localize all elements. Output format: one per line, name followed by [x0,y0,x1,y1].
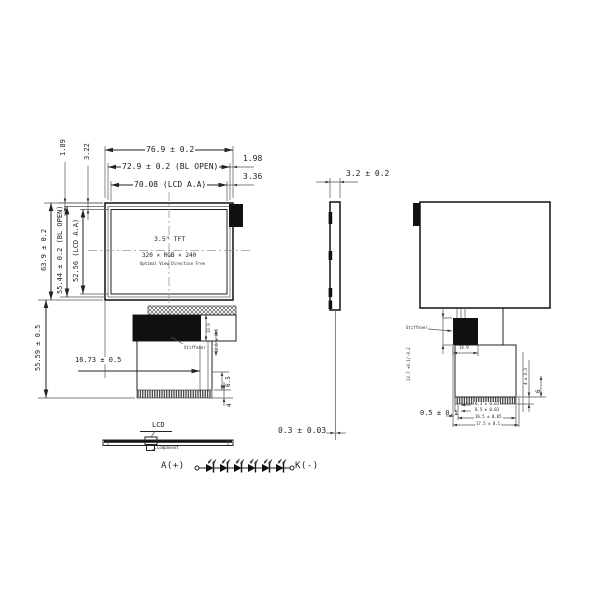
front-fpc-graphics [133,306,236,406]
dim-gap-left-bl: 1.89 [60,139,67,156]
dim-gap-right-bl: 1.98 [243,155,262,163]
fpc-contact-fingers [137,390,212,398]
led-icon [262,459,272,473]
led-icon [248,459,258,473]
side-view-graphics [316,178,358,440]
dim-fpc-end-1: 0.3 ± 0.03 [474,402,500,406]
dim-fpc-stiffener-height: 6.5 [226,376,232,387]
anode-label: A(+) [161,462,185,471]
dim-back-right-b: 6 [536,389,542,393]
dim-lcd-aa-width: 70.08 (LCD A.A) [133,181,207,189]
led-icon [276,459,286,473]
dim-fpc-end-3: 16.5 ± 0.05 [474,415,503,419]
back-tab [413,203,420,226]
dim-fpc-end-offset: 0.5 ± 0.1 [420,410,458,417]
dim-connector-b: 12.6 ± 0.5 [215,329,219,353]
dim-gap-left-aa: 3.22 [84,143,91,160]
lcd-label: LCD [152,422,165,429]
drawing-canvas [0,0,600,600]
dim-overall-height: 63.9 ± 0.2 [41,228,48,272]
dim-back-connector-width: 14.9 [458,346,470,350]
panel-resolution-label: 320 × RGB × 240 [142,253,196,259]
dim-back-right-a: 4 ± 0.3 [524,368,528,385]
led-circuit-graphics [195,459,294,473]
dim-lcd-aa-height: 52.56 (LCD A.A) [73,218,80,283]
dim-back-connector-height: 13.7 +0.1/-0.2 [407,347,411,381]
lcd-module-drawing-sheet: 76.9 ± 0.2 72.9 ± 0.2 (BL OPEN) 70.08 (L… [0,0,600,600]
dim-fpc-end-2: 0.5 ± 0.03 [474,408,500,412]
back-outline [420,202,550,308]
panel-size-label: 3.5" TFT [154,236,185,243]
back-stiffener-block [453,318,478,345]
stiffener-label-front: Stiffener [184,346,206,350]
fpc-stiffener-block [133,315,201,341]
dim-gap-right-aa: 3.36 [243,173,262,181]
dim-fpc-offset: 16.73 ± 0.5 [74,357,122,364]
view-direction-label: Optimal View Direction Free [140,262,205,266]
dim-connector-a: 10.9 [207,323,211,333]
dim-fpc-thickness: 0.3 ± 0.03 [278,427,326,435]
dim-module-total-height: 55.59 ± 0.5 [35,324,42,372]
backlight-tab [229,204,243,227]
anode-terminal [195,466,199,470]
dim-bl-open-height: 55.44 ± 0.2 (BL OPEN) [57,204,64,295]
dim-fpc-end-4: 17.5 ± 0.1 [475,422,501,426]
led-icon [220,459,230,473]
led-icon [206,459,216,473]
cathode-label: K(-) [295,462,319,471]
tape-hatch [148,306,236,315]
component-label: Component [157,446,179,450]
dim-fpc-contact-height: 4 [227,403,233,407]
led-icon [234,459,244,473]
dim-bl-open-width: 72.9 ± 0.2 (BL OPEN) [121,163,219,171]
back-view-graphics [413,202,550,427]
dim-overall-width: 76.9 ± 0.2 [145,146,195,154]
dim-thickness: 3.2 ± 0.2 [346,170,389,178]
stiffener-label-back: Stiffener [406,326,428,330]
cathode-terminal [290,466,294,470]
